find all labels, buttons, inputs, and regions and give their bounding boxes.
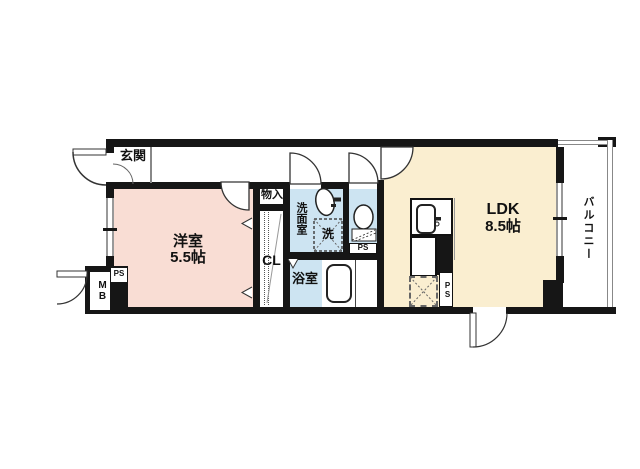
kitchen-faucet	[434, 217, 441, 221]
label-storage: 物入	[254, 190, 290, 202]
label-ldk-size: 8.5帖	[463, 219, 543, 235]
label-washroom: 洗面室	[292, 192, 306, 244]
south-door-arc	[473, 313, 507, 347]
kitchen-faucet-knob	[435, 222, 439, 226]
label-laundry: 洗	[320, 228, 336, 241]
entrance-inner-arc	[113, 164, 133, 184]
mb-door-leaf	[57, 271, 87, 277]
label-genkan: 玄関	[115, 149, 151, 163]
south-door-gap	[473, 307, 506, 314]
label-mb: MB	[93, 275, 107, 307]
toilet-door	[349, 153, 378, 183]
washbasin-faucet-2	[331, 204, 336, 207]
label-western-size: 5.5帖	[148, 250, 228, 266]
label-closet: CL	[259, 253, 284, 268]
label-ps-toilet: PS	[349, 244, 377, 252]
closet-chevron-bottom	[242, 287, 252, 298]
entrance-door-arc	[73, 152, 106, 185]
toilet-bowl	[354, 205, 373, 229]
label-ps-entrance: PS	[111, 270, 127, 278]
label-western-room: 洋室	[148, 234, 228, 250]
floor-plan: 玄関 洋室 5.5帖 物入 CL 洗面室 洗 浴室 LDK 8.5帖 バルコニー…	[0, 0, 640, 469]
label-balcony: バルコニー	[577, 187, 593, 269]
label-ps-kitchen: PS	[442, 276, 451, 304]
western-door	[221, 182, 249, 210]
entrance-door-leaf	[73, 149, 106, 155]
ldk-door	[381, 147, 413, 179]
label-bathroom: 浴室	[288, 272, 322, 286]
mb-door-arc	[57, 274, 87, 304]
label-ldk: LDK	[463, 202, 543, 219]
closet-chevron-top	[242, 218, 252, 229]
bath-chevron	[288, 259, 298, 268]
washbasin-faucet	[333, 198, 341, 202]
south-door-leaf	[470, 313, 476, 347]
washbasin	[313, 187, 336, 217]
washroom-door	[290, 153, 321, 184]
